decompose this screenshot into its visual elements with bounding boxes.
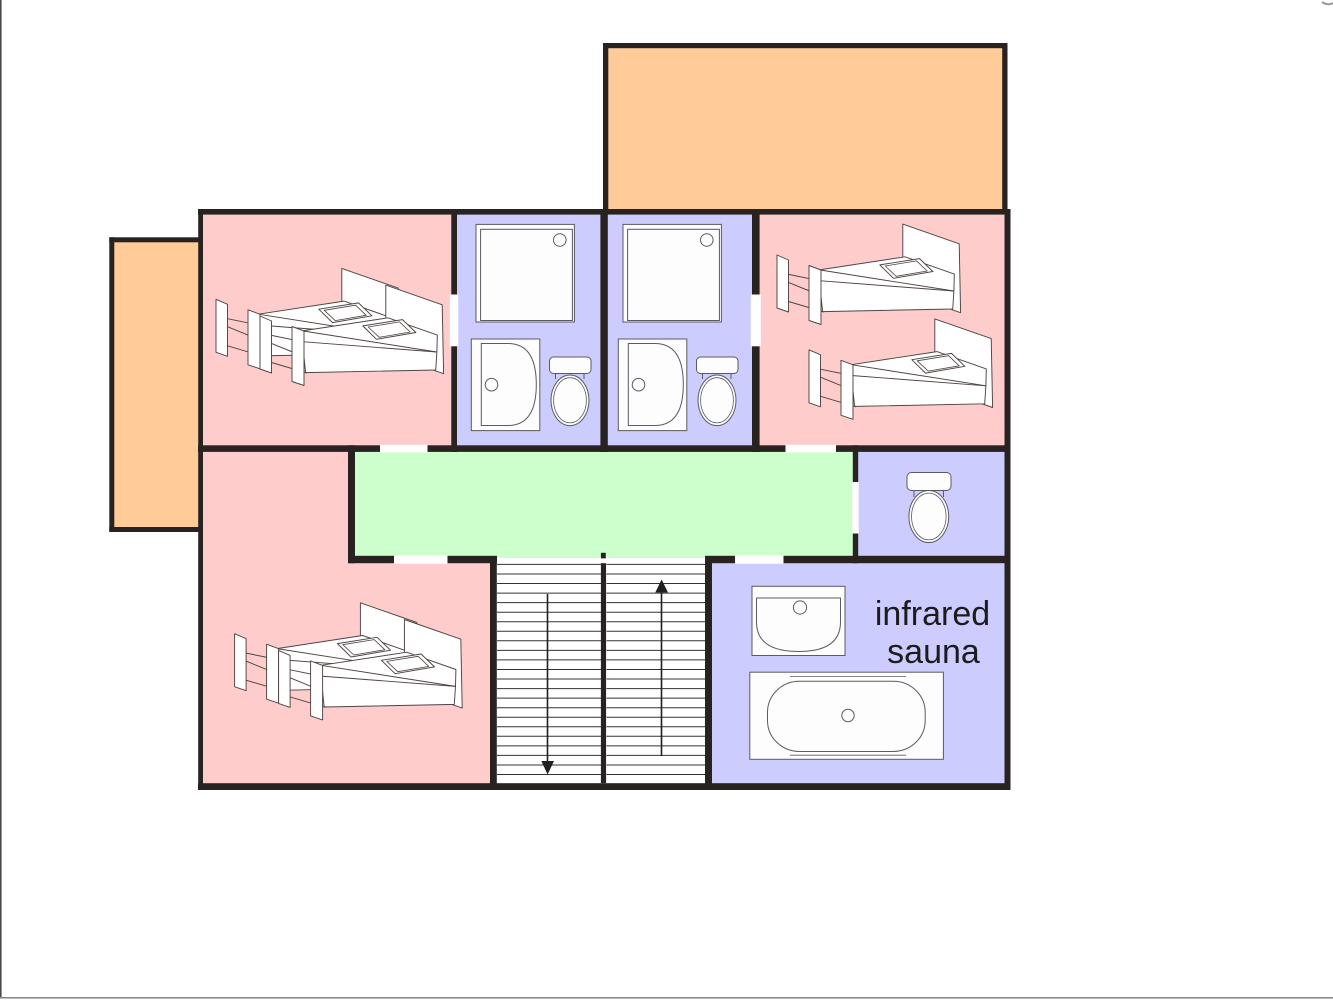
svg-text:sauna: sauna (887, 633, 980, 671)
svg-text:infrared: infrared (875, 595, 990, 633)
